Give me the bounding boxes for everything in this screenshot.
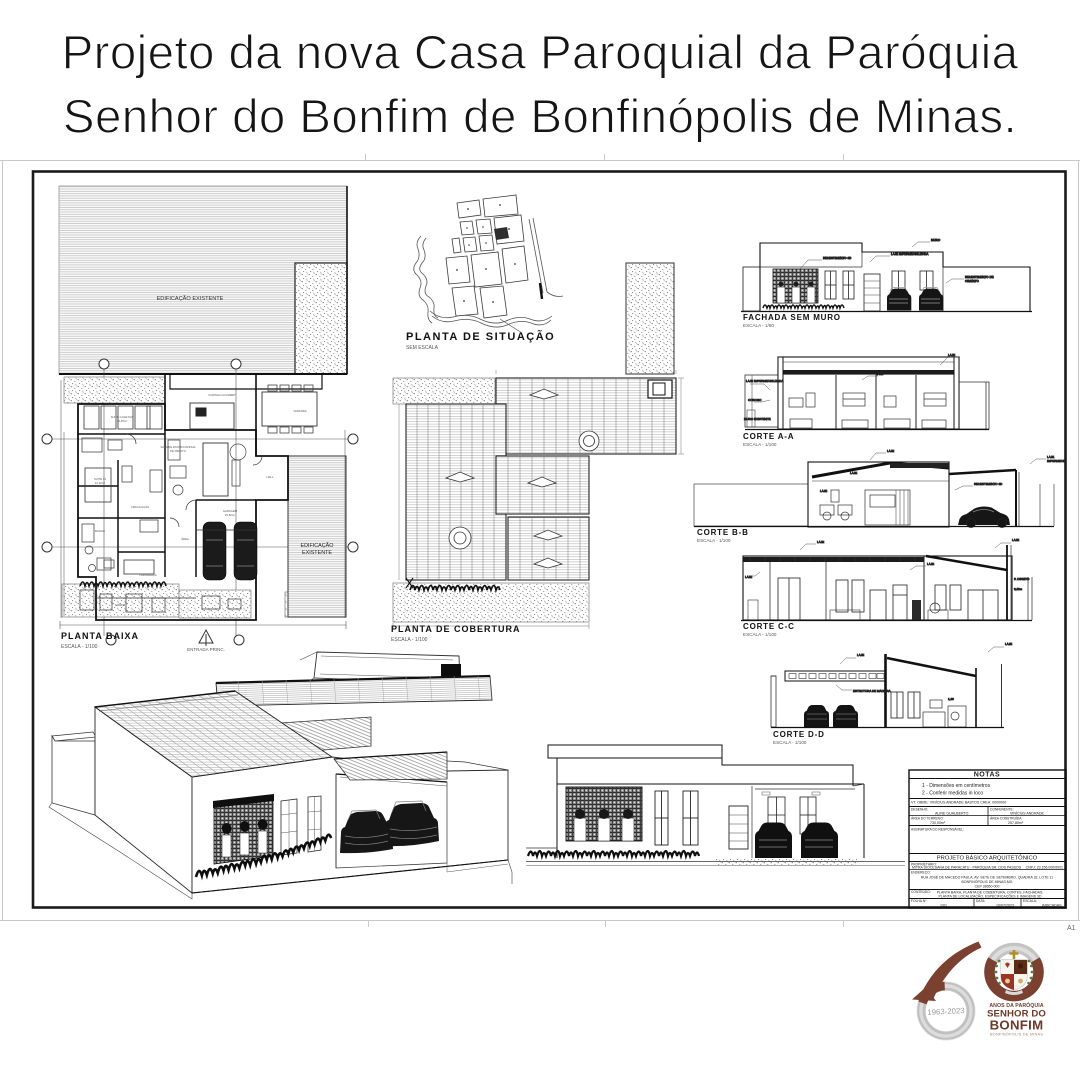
svg-text:23,80m²: 23,80m² — [225, 513, 235, 517]
svg-text:2 - Conferir medidas in loco: 2 - Conferir medidas in loco — [922, 791, 983, 797]
svg-text:ESCALA - 1/100: ESCALA - 1/100 — [391, 637, 428, 643]
svg-text:LAJE: LAJE — [876, 372, 883, 376]
svg-text:PLANTA DE COBERTURA: PLANTA DE COBERTURA — [391, 624, 521, 634]
svg-text:CEP 38650-000: CEP 38650-000 — [975, 885, 1000, 889]
svg-text:LAJE: LAJE — [1005, 642, 1012, 646]
svg-text:Projeto da nova Casa Paroquial: Projeto da nova Casa Paroquial da Paróqu… — [62, 27, 1019, 80]
svg-text:P. DIREITO: P. DIREITO — [1014, 577, 1030, 581]
svg-text:12,20m²: 12,20m² — [95, 481, 105, 485]
svg-text:CORTE A-A: CORTE A-A — [743, 432, 794, 441]
svg-text:LAJE: LAJE — [887, 449, 894, 453]
svg-text:ÁREA: ÁREA — [181, 537, 189, 541]
svg-text:LAJE IMPERMEABILIZADA: LAJE IMPERMEABILIZADA — [891, 252, 928, 256]
svg-text:SEM ESCALA: SEM ESCALA — [406, 345, 439, 351]
svg-text:LAJE: LAJE — [817, 540, 824, 544]
svg-text:LAJE: LAJE — [820, 489, 827, 493]
svg-text:ESCALA:: ESCALA: — [1023, 899, 1037, 903]
svg-text:LAJE: LAJE — [745, 575, 752, 579]
svg-text:ESCALA - 1/50: ESCALA - 1/50 — [743, 323, 774, 328]
svg-text:BONFIM: BONFIM — [990, 1018, 1044, 1033]
svg-text:1/01: 1/01 — [940, 904, 947, 908]
svg-text:PLANTA BAIXA: PLANTA BAIXA — [61, 631, 139, 641]
svg-text:CNPJ: 23.156.000/0001: CNPJ: 23.156.000/0001 — [1026, 866, 1063, 870]
svg-text:10/07/2023: 10/07/2023 — [996, 904, 1014, 908]
svg-text:LAJE: LAJE — [857, 653, 864, 657]
svg-text:CORTE D-D: CORTE D-D — [773, 730, 825, 739]
svg-text:REVESTIMENTO 3D: REVESTIMENTO 3D — [974, 482, 1003, 486]
svg-text:257,80m²: 257,80m² — [1008, 821, 1024, 825]
svg-text:ESCALA - 1/100: ESCALA - 1/100 — [697, 538, 731, 543]
svg-text:3,11m: 3,11m — [1014, 587, 1023, 591]
svg-text:CIMENTO: CIMENTO — [965, 279, 979, 283]
svg-text:MURO: MURO — [931, 238, 941, 242]
svg-text:FOLHA Nº: FOLHA Nº — [911, 899, 927, 903]
svg-text:ESCALA - 1/100: ESCALA - 1/100 — [743, 442, 777, 447]
svg-text:PÉ DIREITO: PÉ DIREITO — [170, 448, 187, 453]
svg-text:ESCALA - 1/100: ESCALA - 1/100 — [743, 632, 777, 637]
svg-text:EDIFICAÇÃO EXISTENTE: EDIFICAÇÃO EXISTENTE — [157, 295, 224, 302]
svg-text:ESCALA - 1/100: ESCALA - 1/100 — [61, 644, 98, 650]
svg-text:LAJE: LAJE — [1012, 538, 1019, 542]
svg-text:FACHADA SEM MURO: FACHADA SEM MURO — [743, 313, 841, 322]
svg-text:EXISTENTE: EXISTENTE — [302, 550, 332, 556]
svg-text:730,00m²: 730,00m² — [930, 821, 946, 825]
svg-text:1 - Dimensões em centímetros: 1 - Dimensões em centímetros — [922, 783, 991, 789]
svg-text:CORTE B-B: CORTE B-B — [697, 528, 749, 537]
svg-text:COZINHA GOURMET: COZINHA GOURMET — [208, 393, 236, 397]
svg-text:LAJE: LAJE — [850, 471, 857, 475]
svg-text:ÁREA CONSTRUÍDA:: ÁREA CONSTRUÍDA: — [990, 817, 1023, 821]
svg-text:PLANTA DE LOCALIZAÇÃO, ESPECIF: PLANTA DE LOCALIZAÇÃO, ESPECIFICAÇÕES E … — [938, 894, 1041, 899]
svg-text:REVESTIMENTO 3D: REVESTIMENTO 3D — [823, 256, 852, 260]
svg-text:VINÍCIUS ANDRADE: VINÍCIUS ANDRADE — [1010, 812, 1045, 816]
svg-text:CIRCULAÇÃO: CIRCULAÇÃO — [131, 504, 150, 509]
svg-text:DATA:: DATA: — [976, 899, 985, 903]
svg-text:PROJETO BÁSICO ARQUITETÔNICO: PROJETO BÁSICO ARQUITETÔNICO — [937, 855, 1038, 862]
svg-text:BONFINÓPOLIS DE MINAS: BONFINÓPOLIS DE MINAS — [990, 1032, 1043, 1037]
svg-text:RUA JOSÉ DE MACEDO PAULA, AV.: RUA JOSÉ DE MACEDO PAULA, AV. SETE DE SE… — [921, 875, 1053, 880]
svg-text:ALINE GUALBERTO: ALINE GUALBERTO — [935, 812, 969, 816]
svg-text:LAJE IMPERMEABILIZADA: LAJE IMPERMEABILIZADA — [746, 379, 783, 383]
svg-text:VARANDA: VARANDA — [293, 409, 306, 413]
svg-text:ÁREA DO TERRENO:: ÁREA DO TERRENO: — [911, 817, 944, 821]
svg-text:DESENHO:: DESENHO: — [911, 808, 928, 812]
svg-text:JARDIM: JARDIM — [115, 603, 126, 607]
svg-text:NOTAS: NOTAS — [974, 772, 1000, 779]
svg-text:BONFINÓPOLIS DE MINAS-MG: BONFINÓPOLIS DE MINAS-MG — [962, 879, 1013, 884]
svg-text:HALL: HALL — [267, 475, 274, 479]
svg-text:CONTEÚDO:: CONTEÚDO: — [911, 890, 931, 894]
svg-text:BANHO: BANHO — [95, 529, 106, 533]
svg-text:EDIFICAÇÃO: EDIFICAÇÃO — [301, 542, 334, 549]
svg-text:LAJE: LAJE — [948, 353, 955, 357]
svg-text:Senhor do Bonfim de Bonfinópol: Senhor do Bonfim de Bonfinópolis de Mina… — [63, 91, 1017, 144]
svg-text:16,45m²: 16,45m² — [117, 419, 127, 423]
svg-text:COBOGO: COBOGO — [748, 398, 762, 402]
svg-text:CORTE C-C: CORTE C-C — [743, 622, 795, 631]
svg-text:ENTRADA PRINC.: ENTRADA PRINC. — [187, 647, 225, 652]
svg-text:ASSINATURA DO RESPONSÁVEL:: ASSINATURA DO RESPONSÁVEL: — [911, 828, 964, 832]
svg-text:ESCALA - 1/100: ESCALA - 1/100 — [773, 740, 807, 745]
svg-text:MURO EXISTENTE: MURO EXISTENTE — [744, 417, 771, 421]
svg-text:1,10: 1,10 — [948, 697, 954, 701]
svg-text:PLANTA DE SITUAÇÃO: PLANTA DE SITUAÇÃO — [406, 330, 555, 343]
svg-text:VT. OBME: VINÍCIUS ANDRADE: VT. OBME: VINÍCIUS ANDRADE BASTOS CREA: … — [911, 801, 1006, 805]
svg-text:LAVANDERIA: LAVANDERIA — [139, 573, 156, 577]
svg-text:ESTRUTURA DE MADEIRA: ESTRUTURA DE MADEIRA — [853, 689, 891, 693]
svg-text:IMPERMEAB.: IMPERMEAB. — [1047, 459, 1066, 463]
svg-text:LAJE: LAJE — [927, 562, 934, 566]
svg-text:A1: A1 — [1067, 925, 1076, 932]
svg-text:ENDEREÇO:: ENDEREÇO: — [911, 871, 931, 875]
svg-text:INDICADAS: INDICADAS — [1042, 904, 1062, 908]
svg-text:MITRA DIOCESANA DE PARACATU -: MITRA DIOCESANA DE PARACATU - PARÓQUIA S… — [912, 865, 1022, 870]
